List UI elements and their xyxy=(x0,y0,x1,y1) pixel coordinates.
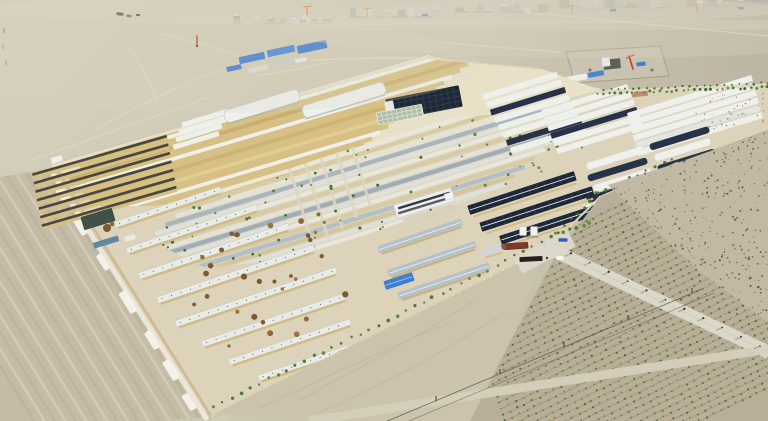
screenshot xyxy=(0,0,768,421)
aerial-photo-figure xyxy=(0,0,768,421)
aerial-photo xyxy=(0,0,768,421)
